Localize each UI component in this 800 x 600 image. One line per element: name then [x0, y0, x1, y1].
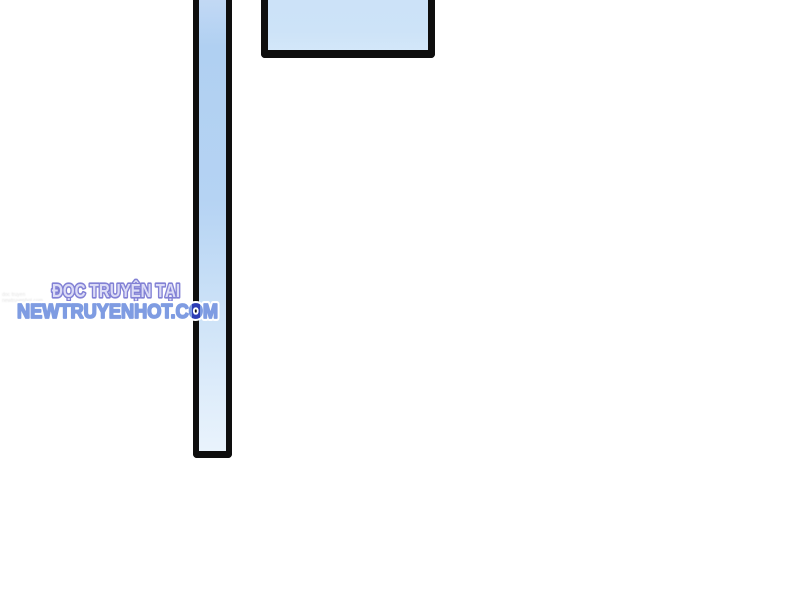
svg-text:ĐỌC TRUYỆN TẠI: ĐỌC TRUYỆN TẠI: [52, 280, 180, 301]
svg-text:NEWTRUYENHOT.COM: NEWTRUYENHOT.COM: [17, 300, 218, 323]
